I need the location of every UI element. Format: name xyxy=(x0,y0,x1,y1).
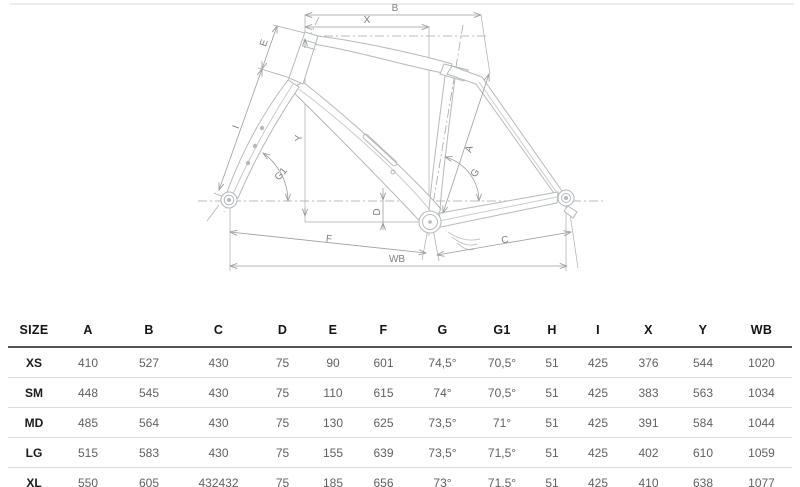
dim-label-d: D xyxy=(372,208,383,215)
dim-g-arc xyxy=(445,157,479,201)
value-cell: 73,5° xyxy=(411,408,474,438)
value-cell: 75 xyxy=(255,378,310,408)
value-cell: 601 xyxy=(356,347,411,378)
value-cell: 545 xyxy=(116,378,182,408)
chainstay xyxy=(436,192,558,228)
dim-label-e: E xyxy=(258,38,271,48)
dim-label-a: A xyxy=(463,144,476,154)
col-header-h: H xyxy=(530,316,574,347)
size-cell: MD xyxy=(8,408,60,438)
value-cell: 1044 xyxy=(731,408,792,438)
value-cell: 383 xyxy=(622,378,675,408)
value-cell: 70,5° xyxy=(474,378,530,408)
value-cell: 615 xyxy=(356,378,411,408)
value-cell: 71,5° xyxy=(474,438,530,468)
value-cell: 70,5° xyxy=(474,347,530,378)
col-header-g1: G1 xyxy=(474,316,530,347)
value-cell: 485 xyxy=(60,408,116,438)
value-cell: 605 xyxy=(116,468,182,487)
value-cell: 73,5° xyxy=(411,438,474,468)
value-cell: 51 xyxy=(530,378,574,408)
seat-stay xyxy=(447,66,562,196)
value-cell: 51 xyxy=(530,347,574,378)
geometry-table-section: SIZE A B C D E F G G1 H I X Y WB xyxy=(0,316,800,487)
col-header-wb: WB xyxy=(731,316,792,347)
value-cell: 564 xyxy=(116,408,182,438)
seat-stay-inner-line xyxy=(479,82,557,193)
size-cell: SM xyxy=(8,378,60,408)
bike-frame-drawing xyxy=(221,32,577,250)
value-cell: 639 xyxy=(356,438,411,468)
value-cell: 550 xyxy=(60,468,116,487)
value-cell: 73° xyxy=(411,468,474,487)
head-tube xyxy=(289,32,318,84)
dim-label-y: Y xyxy=(294,134,305,141)
dim-label-wb: WB xyxy=(389,254,405,265)
col-header-g: G xyxy=(411,316,474,347)
dim-a-line xyxy=(443,74,489,213)
value-cell: 425 xyxy=(574,438,622,468)
dim-label-x: X xyxy=(364,15,371,26)
value-cell: 74° xyxy=(411,378,474,408)
value-cell: 610 xyxy=(675,438,731,468)
value-cell: 563 xyxy=(675,378,731,408)
col-header-y: Y xyxy=(675,316,731,347)
size-cell: XS xyxy=(8,347,60,378)
value-cell: 1020 xyxy=(731,347,792,378)
value-cell: 425 xyxy=(574,408,622,438)
value-cell: 430 xyxy=(182,378,255,408)
dim-label-i: I xyxy=(231,124,242,130)
table-row-md: MD 485 564 430 75 130 625 73,5° 71° 51 4… xyxy=(8,408,792,438)
rear-dropout xyxy=(558,190,577,218)
col-header-x: X xyxy=(622,316,675,347)
value-cell: 376 xyxy=(622,347,675,378)
col-header-size: SIZE xyxy=(8,316,60,347)
value-cell: 74,5° xyxy=(411,347,474,378)
value-cell: 430 xyxy=(182,438,255,468)
col-header-d: D xyxy=(255,316,310,347)
fork xyxy=(227,80,299,198)
dim-label-b: B xyxy=(392,3,399,14)
col-header-i: I xyxy=(574,316,622,347)
value-cell: 584 xyxy=(675,408,731,438)
value-cell: 51 xyxy=(530,468,574,487)
value-cell: 90 xyxy=(310,347,356,378)
value-cell: 110 xyxy=(310,378,356,408)
value-cell: 155 xyxy=(310,438,356,468)
value-cell: 75 xyxy=(255,438,310,468)
table-row-sm: SM 448 545 430 75 110 615 74° 70,5° 51 4… xyxy=(8,378,792,408)
value-cell: 430 xyxy=(182,347,255,378)
value-cell: 402 xyxy=(622,438,675,468)
value-cell: 130 xyxy=(310,408,356,438)
value-cell: 75 xyxy=(255,347,310,378)
col-header-a: A xyxy=(60,316,116,347)
down-tube xyxy=(290,82,441,231)
value-cell: 430 xyxy=(182,408,255,438)
table-header-row: SIZE A B C D E F G G1 H I X Y WB xyxy=(8,316,792,347)
bottom-bracket xyxy=(419,211,441,233)
col-header-e: E xyxy=(310,316,356,347)
value-cell: 75 xyxy=(255,468,310,487)
value-cell: 656 xyxy=(356,468,411,487)
col-header-b: B xyxy=(116,316,182,347)
value-cell: 185 xyxy=(310,468,356,487)
value-cell: 1059 xyxy=(731,438,792,468)
seat-tube-axis-line xyxy=(430,25,463,222)
dim-label-g1: G1 xyxy=(273,165,290,183)
dim-label-g: G xyxy=(469,167,483,180)
size-cell: XL xyxy=(8,468,60,487)
value-cell: 448 xyxy=(60,378,116,408)
value-cell: 425 xyxy=(574,468,622,487)
value-cell: 51 xyxy=(530,408,574,438)
value-cell: 425 xyxy=(574,378,622,408)
value-cell: 75 xyxy=(255,408,310,438)
value-cell: 527 xyxy=(116,347,182,378)
top-tube xyxy=(313,36,452,74)
table-row-lg: LG 515 583 430 75 155 639 73,5° 71,5° 51… xyxy=(8,438,792,468)
chainstay-guard xyxy=(448,232,480,250)
value-cell: 410 xyxy=(60,347,116,378)
value-cell: 515 xyxy=(60,438,116,468)
value-cell: 51 xyxy=(530,438,574,468)
size-cell: LG xyxy=(8,438,60,468)
geometry-table: SIZE A B C D E F G G1 H I X Y WB xyxy=(8,316,792,487)
dim-label-c: C xyxy=(501,234,510,246)
value-cell: 638 xyxy=(675,468,731,487)
geometry-page: B X E I Y G1 A G D F C WB SIZE xyxy=(0,0,800,487)
value-cell: 583 xyxy=(116,438,182,468)
value-cell: 71° xyxy=(474,408,530,438)
frame-geometry-diagram: B X E I Y G1 A G D F C WB xyxy=(0,0,800,314)
value-cell: 410 xyxy=(622,468,675,487)
front-dropout xyxy=(221,192,237,208)
value-cell: 71,5° xyxy=(474,468,530,487)
col-header-f: F xyxy=(356,316,411,347)
value-cell: 1077 xyxy=(731,468,792,487)
dimension-labels: B X E I Y G1 A G D F C WB xyxy=(231,3,510,265)
col-header-c: C xyxy=(182,316,255,347)
value-cell: 432432 xyxy=(182,468,255,487)
value-cell: 391 xyxy=(622,408,675,438)
table-row-xs: XS 410 527 430 75 90 601 74,5° 70,5° 51 … xyxy=(8,347,792,378)
dim-label-f: F xyxy=(325,234,332,246)
table-row-xl: XL 550 605 432432 75 185 656 73° 71,5° 5… xyxy=(8,468,792,487)
value-cell: 425 xyxy=(574,347,622,378)
value-cell: 1034 xyxy=(731,378,792,408)
value-cell: 625 xyxy=(356,408,411,438)
value-cell: 544 xyxy=(675,347,731,378)
